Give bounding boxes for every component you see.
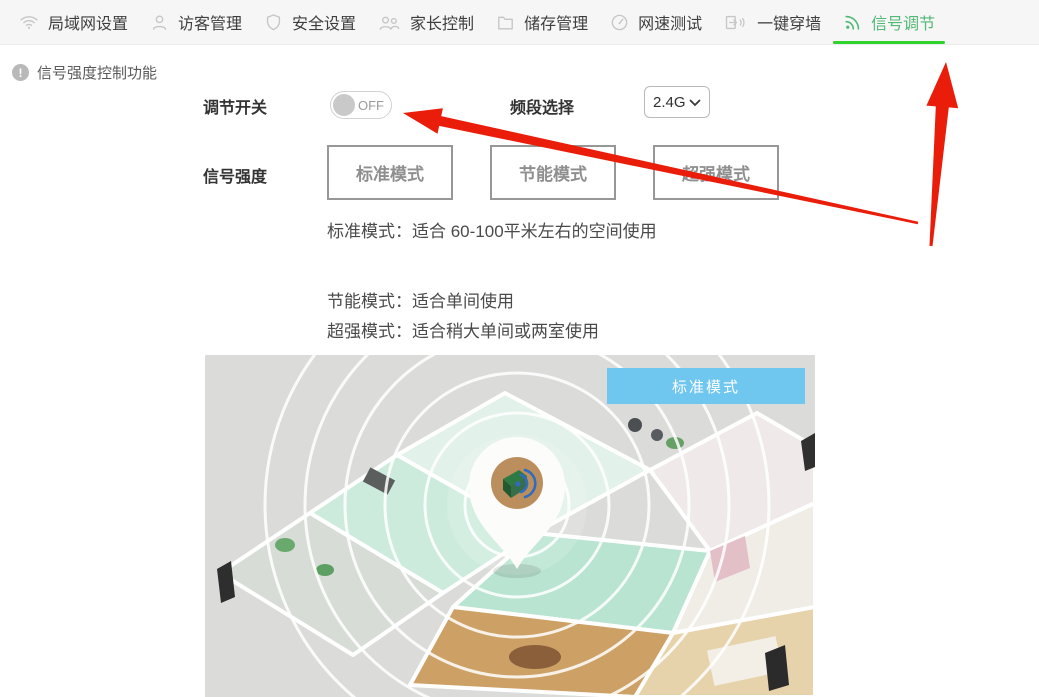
mode-button-energy-saving[interactable]: 节能模式 xyxy=(490,145,616,200)
nav-tab-signal-adjustment[interactable]: 信号调节 xyxy=(832,0,946,44)
nav-label: 信号调节 xyxy=(871,10,935,34)
mode-description-standard: 标准模式：适合 60-100平米左右的空间使用 xyxy=(327,219,665,245)
section-header: ! 信号强度控制功能 xyxy=(12,62,157,83)
mode-button-super-strong[interactable]: 超强模式 xyxy=(653,145,779,200)
signal-icon xyxy=(843,13,862,32)
nav-label: 局域网设置 xyxy=(48,10,128,34)
section-title: 信号强度控制功能 xyxy=(37,62,157,83)
nav-label: 访客管理 xyxy=(178,10,242,34)
nav-tab-speed-test[interactable]: 网速测试 xyxy=(599,0,713,44)
nav-tab-security-settings[interactable]: 安全设置 xyxy=(253,0,367,44)
wall-penetration-icon xyxy=(724,13,748,32)
shield-icon xyxy=(264,13,283,32)
toggle-knob xyxy=(333,94,355,116)
nav-label: 一键穿墙 xyxy=(757,10,821,34)
chevron-down-icon xyxy=(689,94,701,111)
floorplan-image: 标准模式 xyxy=(205,355,815,697)
top-nav: 局域网设置 访客管理 安全设置 家长控制 xyxy=(0,0,1039,45)
mode-description-energy-saving: 节能模式：适合单间使用 xyxy=(327,289,747,315)
band-label: 频段选择 xyxy=(510,94,574,118)
mode-button-standard[interactable]: 标准模式 xyxy=(327,145,453,200)
strength-label: 信号强度 xyxy=(203,163,267,187)
info-icon: ! xyxy=(12,64,29,81)
nav-tab-storage-management[interactable]: 储存管理 xyxy=(485,0,599,44)
mode-description-super-strong: 超强模式：适合稍大单间或两室使用 xyxy=(327,319,747,345)
users-icon xyxy=(378,13,401,32)
toggle-state-label: OFF xyxy=(355,98,391,113)
band-select-value: 2.4G xyxy=(653,94,686,111)
wifi-icon xyxy=(19,12,39,32)
nav-tab-guest-management[interactable]: 访客管理 xyxy=(139,0,253,44)
band-select[interactable]: 2.4G xyxy=(644,86,710,118)
switch-label: 调节开关 xyxy=(203,94,267,118)
nav-label: 网速测试 xyxy=(638,10,702,34)
user-icon xyxy=(150,13,169,32)
floorplan-render xyxy=(205,355,815,697)
nav-label: 储存管理 xyxy=(524,10,588,34)
nav-label: 安全设置 xyxy=(292,10,356,34)
nav-label: 家长控制 xyxy=(410,10,474,34)
adjust-switch-toggle[interactable]: OFF xyxy=(330,91,392,119)
nav-tab-wall-penetration[interactable]: 一键穿墙 xyxy=(713,0,832,44)
nav-tab-lan-settings[interactable]: 局域网设置 xyxy=(8,0,139,44)
nav-tab-parental-control[interactable]: 家长控制 xyxy=(367,0,485,44)
arrow-to-signal-tab xyxy=(926,62,958,246)
floorplan-mode-badge: 标准模式 xyxy=(607,368,805,404)
speedometer-icon xyxy=(610,13,629,32)
storage-icon xyxy=(496,13,515,32)
